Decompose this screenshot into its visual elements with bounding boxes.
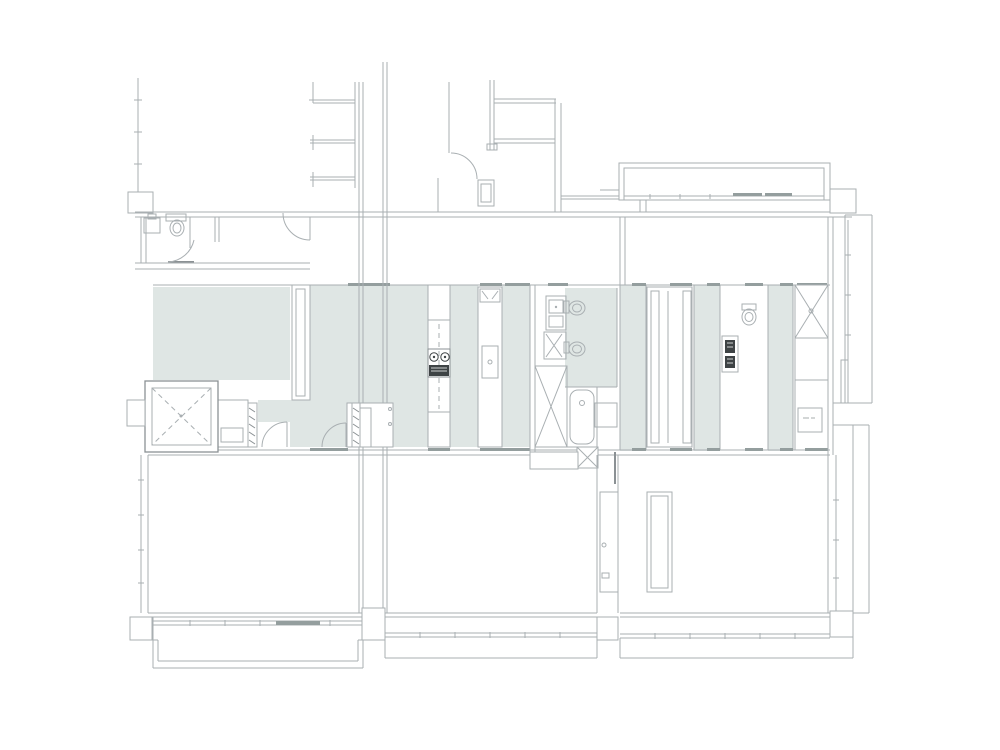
lintel-bar	[428, 448, 450, 451]
floor-shade-corridor-3	[768, 285, 793, 451]
lintel-bar	[745, 283, 763, 286]
column-box	[128, 192, 153, 213]
lintel-bar	[480, 448, 502, 451]
lintel-bar	[745, 448, 763, 451]
bathtub-drain	[580, 401, 585, 406]
shower-x	[535, 366, 567, 447]
bath1-toilet-bowl	[173, 223, 181, 233]
balcony-pier	[362, 608, 385, 640]
floor-shade-bathroom	[565, 288, 617, 387]
lintel-bar	[348, 283, 390, 286]
balcony-pier	[597, 617, 618, 640]
bathtub-inner	[570, 390, 594, 444]
floor-shade-kitchen-gap-2	[502, 285, 530, 447]
bath2-tap	[555, 306, 557, 308]
lintel-bar	[707, 283, 720, 286]
railing-bar	[765, 193, 792, 196]
wc-toilet	[742, 309, 756, 325]
bath2-vanity-inner	[549, 316, 563, 327]
railing-bar	[276, 621, 320, 625]
meter-box	[798, 408, 822, 432]
lintel-bar	[480, 283, 502, 286]
door-swing	[451, 153, 477, 179]
floor-shade-corridor-1	[620, 285, 646, 451]
bath2-ledge	[595, 403, 617, 427]
floor-shade-kitchen-gap-1	[450, 285, 478, 447]
bath2-sink-x	[546, 334, 562, 357]
balcony-top-right	[619, 163, 830, 200]
stove-oven	[429, 365, 449, 376]
lintel-bar	[670, 283, 692, 286]
wardrobe	[647, 287, 692, 447]
lintel-bar	[632, 448, 646, 451]
railing-bar	[733, 193, 762, 196]
elevator-center-dot	[180, 415, 183, 418]
bathtub	[567, 387, 597, 447]
lintel-bar	[670, 448, 692, 451]
stove-burner-dot	[433, 356, 435, 358]
lintel-bar	[502, 448, 530, 451]
lintel-bar	[505, 283, 530, 286]
entry-door2-swing	[262, 422, 287, 447]
floor-shade-below-wall	[290, 400, 310, 447]
wc-unit-dark	[725, 340, 735, 353]
floor-shade-corridor-2	[694, 285, 720, 451]
lintel-bar	[310, 448, 348, 451]
mid-room-counter	[530, 452, 578, 469]
lintel-bar	[805, 448, 828, 451]
wc-unit-dark	[725, 356, 735, 368]
wc-toilet-bowl	[745, 313, 753, 322]
floor-plan-canvas	[0, 0, 1000, 750]
lintel-bar	[707, 448, 720, 451]
floor-shade-entry	[153, 287, 290, 380]
stove-burner-dot	[444, 356, 446, 358]
lintel-bar	[780, 448, 793, 451]
balcony-pier	[130, 617, 152, 640]
lintel-bar	[548, 283, 568, 286]
balcony-pier	[830, 611, 853, 637]
balcony-step	[830, 189, 856, 213]
bath1-toilet	[170, 220, 184, 236]
lintel-bar	[780, 283, 793, 286]
wall-foot	[487, 144, 497, 150]
floor-plan-page	[0, 0, 1000, 750]
lintel-bar	[632, 283, 646, 286]
wall-pier	[292, 285, 310, 400]
wall-pier-left	[127, 400, 145, 426]
